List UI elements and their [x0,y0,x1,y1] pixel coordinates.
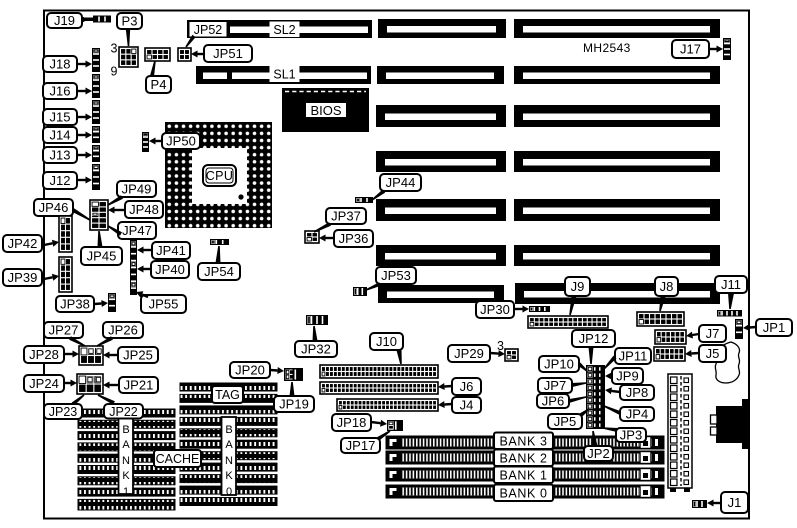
svg-text:B: B [122,424,129,436]
svg-text:CPU: CPU [206,169,234,183]
svg-text:J14: J14 [50,128,71,143]
svg-text:JP37: JP37 [331,209,361,224]
svg-text:JP38: JP38 [60,297,90,312]
svg-text:SL2: SL2 [273,23,295,37]
svg-text:JP10: JP10 [544,357,574,372]
svg-text:J18: J18 [50,57,71,72]
svg-text:JP4: JP4 [626,407,648,422]
svg-text:JP3: JP3 [620,428,642,443]
svg-text:JP42: JP42 [8,236,38,251]
svg-text:JP32: JP32 [301,342,331,357]
svg-text:JP18: JP18 [337,415,367,430]
svg-text:MH2543: MH2543 [583,41,631,55]
svg-text:J16: J16 [50,84,71,99]
svg-text:J12: J12 [50,173,71,188]
svg-text:JP25: JP25 [123,348,153,363]
svg-text:P3: P3 [122,14,138,29]
svg-text:J5: J5 [706,346,720,361]
svg-text:BIOS: BIOS [310,103,341,118]
svg-text:J17: J17 [680,42,701,57]
svg-text:JP28: JP28 [29,347,59,362]
svg-text:B: B [225,424,232,436]
svg-text:JP9: JP9 [616,369,638,384]
svg-text:JP36: JP36 [339,231,369,246]
svg-text:JP6: JP6 [542,394,564,409]
svg-text:K: K [122,470,130,482]
svg-text:J4: J4 [460,398,474,413]
svg-text:BANK 2: BANK 2 [499,451,547,465]
svg-text:JP21: JP21 [124,378,154,393]
svg-text:JP40: JP40 [155,262,185,277]
svg-text:N: N [122,455,130,467]
svg-text:JP29: JP29 [454,346,484,361]
svg-text:JP2: JP2 [587,446,609,461]
svg-text:JP8: JP8 [626,385,648,400]
svg-text:JP23: JP23 [49,405,78,419]
svg-text:JP26: JP26 [108,323,138,338]
svg-text:JP47: JP47 [122,223,152,238]
svg-text:JP41: JP41 [156,243,186,258]
svg-text:JP19: JP19 [279,397,309,412]
svg-text:JP39: JP39 [8,270,38,285]
svg-text:TAG: TAG [215,388,240,402]
svg-text:J15: J15 [50,110,71,125]
svg-text:J19: J19 [54,13,75,28]
svg-text:JP24: JP24 [29,376,59,391]
svg-text:J9: J9 [571,279,585,294]
svg-text:JP5: JP5 [554,414,576,429]
svg-text:J11: J11 [721,277,741,292]
svg-text:JP22: JP22 [109,405,138,419]
svg-text:JP20: JP20 [235,363,265,378]
svg-text:BANK 1: BANK 1 [499,468,547,482]
svg-text:K: K [225,470,233,482]
svg-text:BANK 3: BANK 3 [499,434,547,448]
svg-text:JP11: JP11 [619,349,648,364]
svg-text:CACHE: CACHE [156,452,200,466]
svg-text:JP48: JP48 [129,202,159,217]
svg-text:BANK 0: BANK 0 [499,486,547,500]
svg-text:3: 3 [497,339,504,353]
svg-text:JP46: JP46 [39,200,69,215]
svg-text:JP54: JP54 [204,264,234,279]
svg-text:JP17: JP17 [346,438,376,453]
svg-text:JP44: JP44 [386,175,416,190]
svg-text:1: 1 [123,486,129,498]
svg-text:JP52: JP52 [194,23,223,37]
svg-text:J10: J10 [376,334,397,349]
svg-text:J8: J8 [660,279,674,294]
svg-text:J13: J13 [50,148,71,163]
svg-text:JP12: JP12 [579,331,609,346]
svg-text:A: A [122,439,130,451]
svg-text:JP55: JP55 [149,297,179,312]
svg-text:P4: P4 [151,77,167,92]
svg-text:N: N [225,455,233,467]
svg-text:JP45: JP45 [87,249,117,264]
svg-text:0: 0 [226,486,232,498]
svg-text:JP30: JP30 [480,302,510,317]
svg-text:JP1: JP1 [763,320,785,335]
svg-text:JP51: JP51 [213,46,243,61]
svg-text:J6: J6 [460,379,474,394]
svg-text:A: A [225,439,233,451]
svg-text:J7: J7 [706,326,720,341]
svg-text:JP27: JP27 [49,323,79,338]
svg-text:J1: J1 [728,495,742,510]
svg-text:3: 3 [111,42,118,56]
svg-text:JP49: JP49 [122,182,152,197]
svg-text:JP7: JP7 [544,378,566,393]
svg-text:JP50: JP50 [166,134,196,149]
svg-text:JP53: JP53 [381,268,411,283]
svg-text:SL1: SL1 [273,67,295,81]
svg-text:9: 9 [111,65,118,79]
